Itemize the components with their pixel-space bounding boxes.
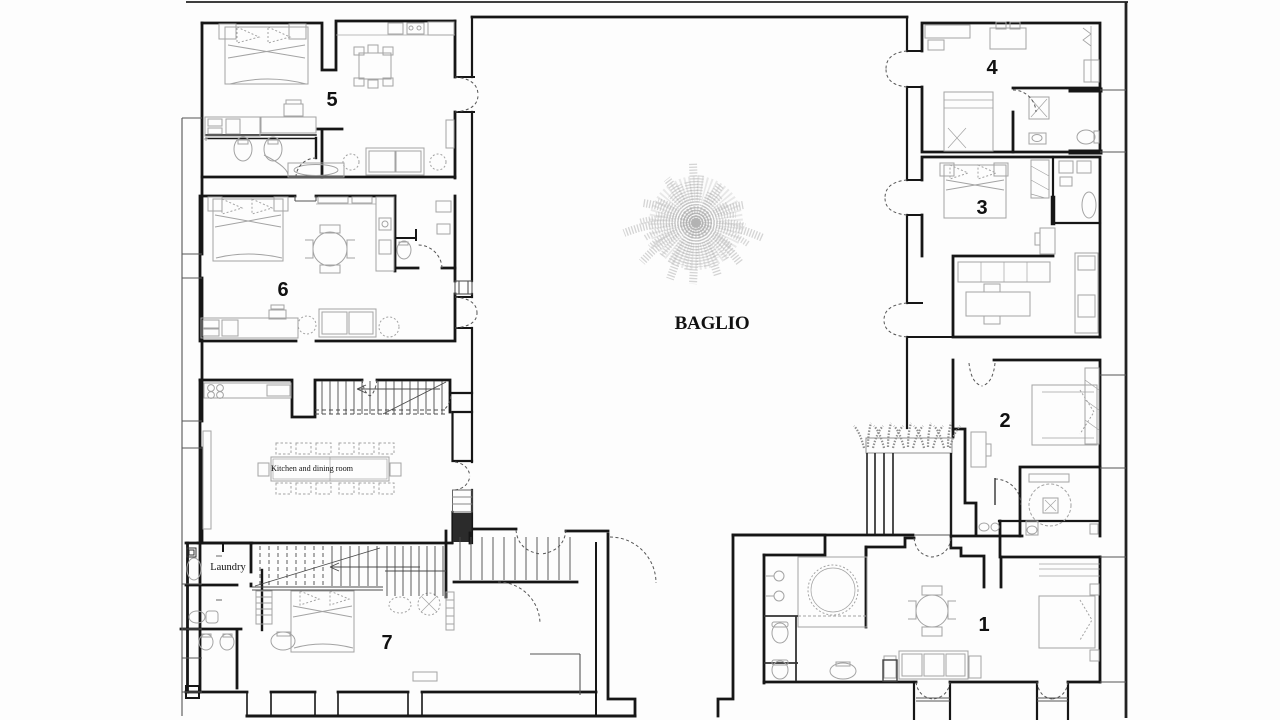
svg-text:6: 6 bbox=[277, 279, 288, 301]
svg-text:4: 4 bbox=[986, 57, 998, 79]
svg-text:BAGLIO: BAGLIO bbox=[675, 313, 750, 334]
svg-text:5: 5 bbox=[326, 89, 337, 111]
svg-text:7: 7 bbox=[381, 632, 392, 654]
svg-text:1: 1 bbox=[978, 614, 989, 636]
svg-text:Laundry: Laundry bbox=[210, 562, 246, 573]
svg-text:Kitchen and dining room: Kitchen and dining room bbox=[271, 464, 354, 473]
svg-text:2: 2 bbox=[999, 410, 1010, 432]
svg-text:3: 3 bbox=[976, 197, 987, 219]
